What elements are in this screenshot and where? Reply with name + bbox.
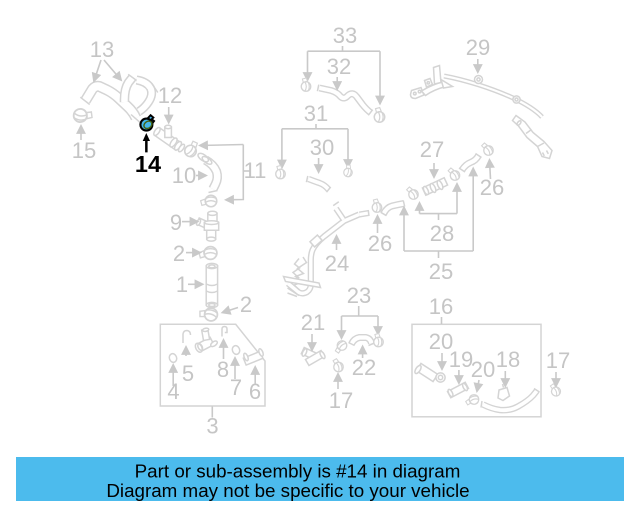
svg-text:27: 27	[420, 137, 444, 162]
svg-text:15: 15	[72, 138, 96, 163]
svg-text:33: 33	[333, 23, 357, 48]
svg-text:Part or sub-assembly is #14 in: Part or sub-assembly is #14 in diagram	[135, 461, 461, 482]
svg-text:19: 19	[449, 347, 473, 372]
svg-text:23: 23	[347, 283, 371, 308]
svg-text:11: 11	[244, 158, 267, 183]
svg-text:9: 9	[170, 210, 182, 235]
svg-text:30: 30	[310, 135, 334, 160]
svg-text:17: 17	[546, 348, 570, 373]
svg-text:2: 2	[240, 292, 252, 317]
svg-text:18: 18	[496, 347, 520, 372]
svg-text:24: 24	[325, 251, 349, 276]
svg-text:14: 14	[135, 151, 161, 177]
svg-text:21: 21	[301, 310, 325, 335]
svg-text:25: 25	[429, 259, 453, 284]
svg-text:8: 8	[217, 357, 229, 382]
svg-text:26: 26	[480, 175, 504, 200]
svg-text:1: 1	[176, 272, 188, 297]
svg-text:Diagram may not be specific to: Diagram may not be specific to your vehi…	[106, 480, 469, 501]
svg-text:7: 7	[230, 375, 242, 400]
svg-text:12: 12	[158, 83, 182, 108]
svg-text:16: 16	[429, 294, 453, 319]
svg-text:13: 13	[90, 37, 114, 62]
svg-text:10: 10	[172, 163, 196, 188]
svg-text:17: 17	[329, 388, 353, 413]
svg-text:26: 26	[368, 231, 392, 256]
svg-text:31: 31	[304, 101, 328, 126]
svg-text:32: 32	[327, 54, 351, 79]
svg-text:5: 5	[182, 361, 194, 386]
svg-text:20: 20	[471, 357, 495, 382]
svg-text:22: 22	[352, 355, 376, 380]
svg-text:2: 2	[173, 241, 185, 266]
svg-text:28: 28	[430, 221, 454, 246]
svg-text:29: 29	[466, 35, 490, 60]
